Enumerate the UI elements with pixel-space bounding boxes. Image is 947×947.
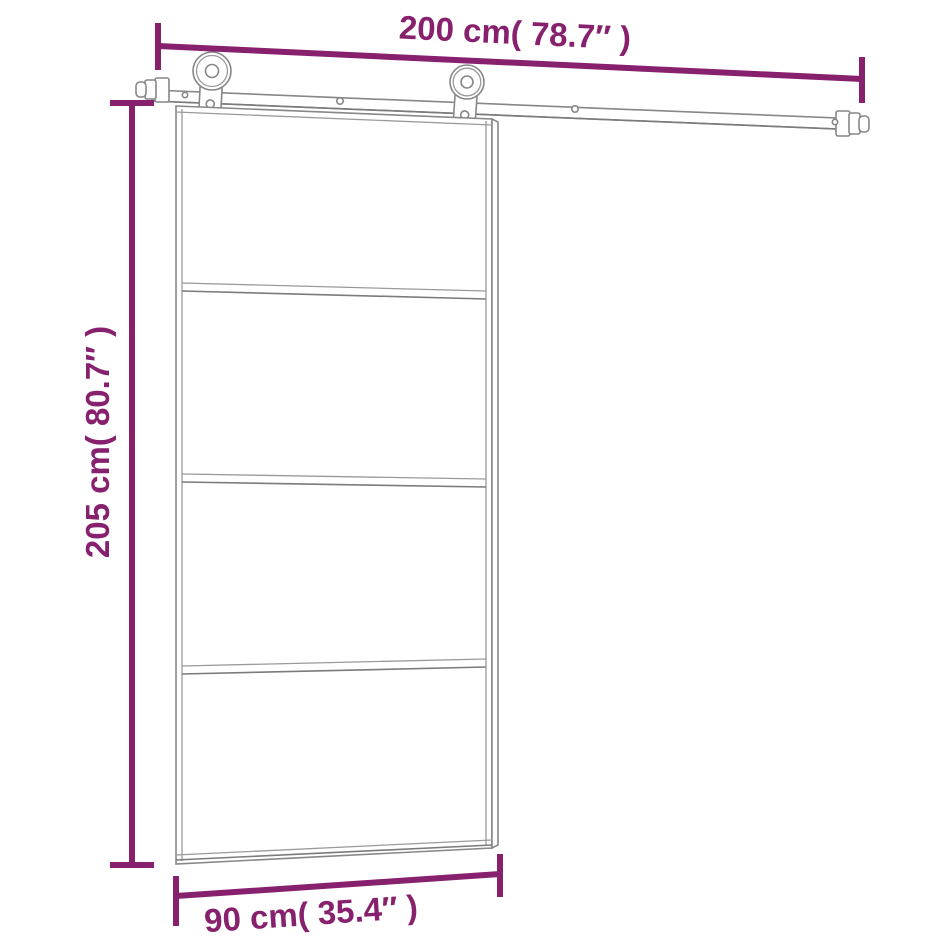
screw-icon [182, 92, 187, 97]
door-panel [176, 106, 498, 864]
screw-icon [337, 98, 343, 104]
sliding-door-line-art [0, 0, 947, 947]
roller-hub-right [461, 76, 473, 88]
door-depth-edge [492, 119, 498, 848]
dimension-diagram: 200 cm( 78.7″ ) 205 cm( 80.7″ ) 90 cm( 3… [0, 0, 947, 947]
screw-icon [832, 119, 837, 124]
screw-icon [572, 106, 578, 112]
rail-end-cap-left [136, 78, 169, 102]
rail-end-cap-right [836, 111, 869, 136]
dimension-label-door-height: 205 cm( 80.7″ ) [79, 326, 117, 558]
roller-hanger-left [193, 52, 231, 116]
roller-hub-left [206, 65, 219, 78]
